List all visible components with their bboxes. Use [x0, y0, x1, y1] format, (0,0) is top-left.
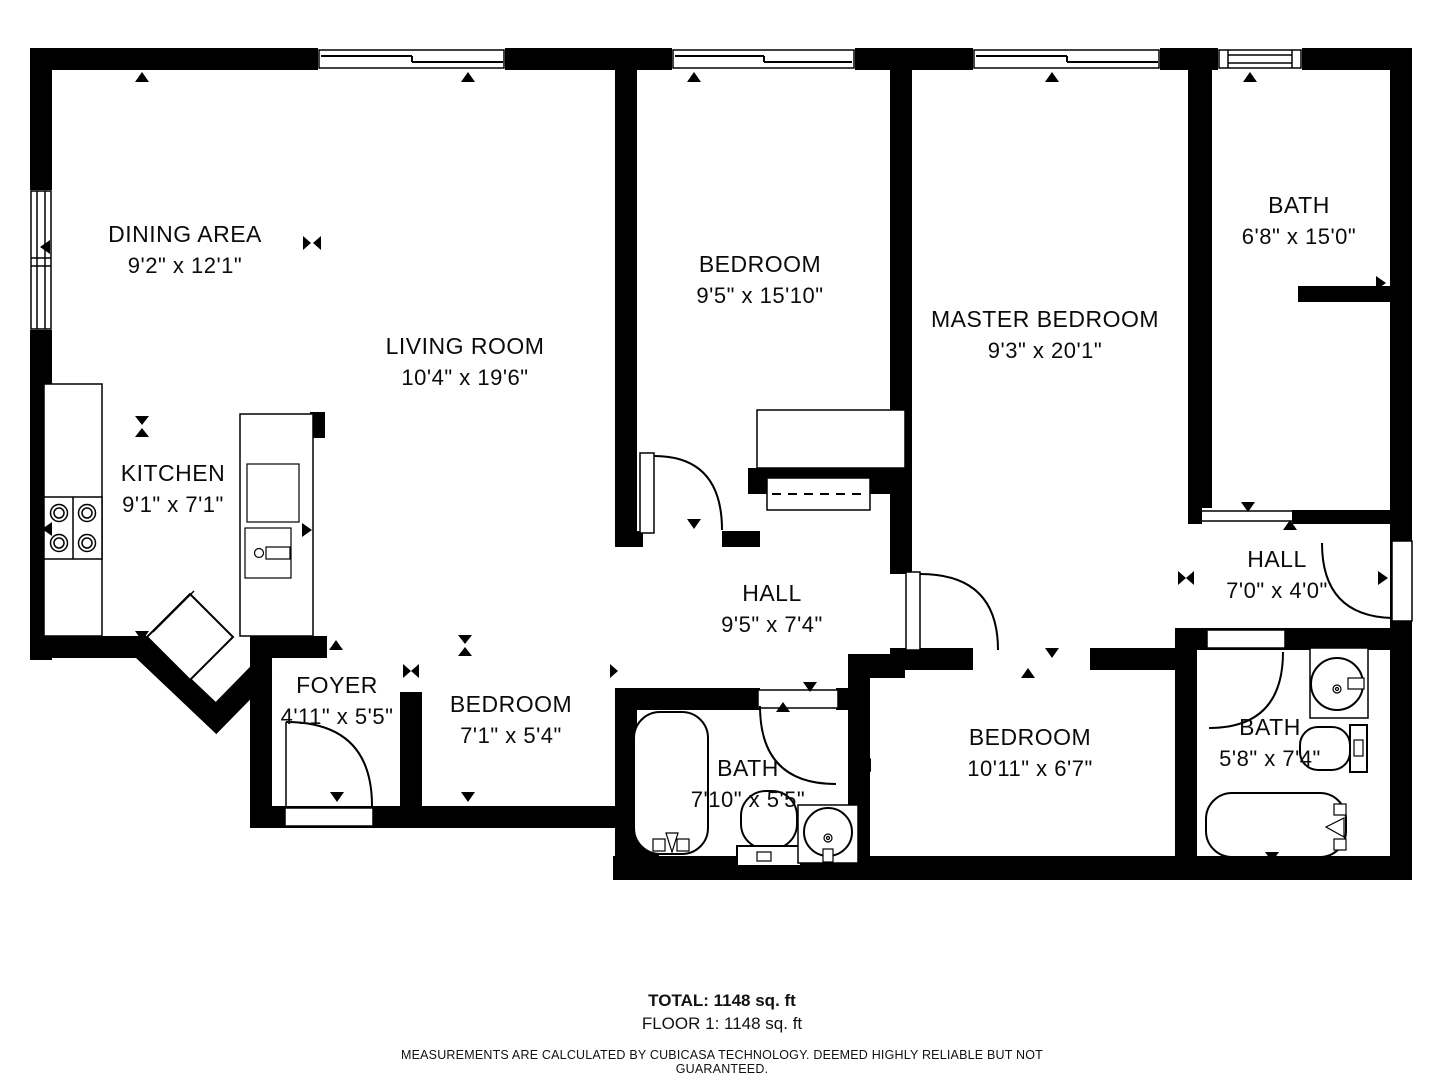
room-label-bedroom-small: BEDROOM 7'1" x 5'4"	[450, 689, 572, 751]
closet-sliding-door	[767, 478, 870, 510]
window-living	[318, 48, 505, 70]
room-name: BATH	[1242, 190, 1356, 221]
window-bedroom	[672, 48, 855, 70]
window-master	[973, 48, 1160, 70]
room-label-bedroom-top: BEDROOM 9'5" x 15'10"	[696, 249, 823, 311]
room-dimensions: 5'8" x 7'4"	[1219, 743, 1321, 774]
room-name: BEDROOM	[696, 249, 823, 280]
room-name: BEDROOM	[967, 722, 1093, 753]
room-name: LIVING ROOM	[386, 331, 545, 362]
room-name: KITCHEN	[121, 458, 225, 489]
stove-icon	[44, 497, 102, 559]
door-bedroom-top	[640, 453, 722, 533]
room-dimensions: 9'5" x 15'10"	[696, 280, 823, 311]
room-name: MASTER BEDROOM	[931, 304, 1159, 335]
total-area-text: TOTAL: 1148 sq. ft	[363, 989, 1081, 1012]
room-name: FOYER	[281, 670, 394, 701]
door-foyer	[285, 722, 373, 826]
door-master	[906, 572, 998, 650]
dishwasher-icon	[245, 528, 291, 578]
window-dining	[30, 190, 52, 330]
opening-bedroom-door	[643, 529, 722, 549]
room-label-bath-right: BATH 5'8" x 7'4"	[1219, 712, 1321, 774]
room-dimensions: 4'11" x 5'5"	[281, 701, 394, 732]
sink-icon	[1310, 648, 1368, 718]
window-bath	[1218, 48, 1302, 70]
room-label-master: MASTER BEDROOM 9'3" x 20'1"	[931, 304, 1159, 366]
room-name: HALL	[721, 578, 823, 609]
room-dimensions: 9'2" x 12'1"	[108, 250, 262, 281]
room-name: BATH	[691, 753, 805, 784]
closet-bedroom	[757, 410, 905, 468]
room-name: HALL	[1226, 544, 1328, 575]
door-hall-right	[1322, 541, 1412, 621]
room-label-living: LIVING ROOM 10'4" x 19'6"	[386, 331, 545, 393]
room-dimensions: 10'11" x 6'7"	[967, 753, 1093, 784]
room-dimensions: 9'3" x 20'1"	[931, 335, 1159, 366]
room-label-foyer: FOYER 4'11" x 5'5"	[281, 670, 394, 732]
room-name: DINING AREA	[108, 219, 262, 250]
room-label-hall-right: HALL 7'0" x 4'0"	[1226, 544, 1328, 606]
floor-area-text: FLOOR 1: 1148 sq. ft	[363, 1012, 1081, 1035]
room-dimensions: 6'8" x 15'0"	[1242, 221, 1356, 252]
room-dimensions: 9'5" x 7'4"	[721, 609, 823, 640]
room-name: BATH	[1219, 712, 1321, 743]
room-label-bath-top: BATH 6'8" x 15'0"	[1242, 190, 1356, 252]
room-label-bath-mid: BATH 7'10" x 5'5"	[691, 753, 805, 815]
room-label-dining: DINING AREA 9'2" x 12'1"	[108, 219, 262, 281]
disclaimer-text: MEASUREMENTS ARE CALCULATED BY CUBICASA …	[363, 1048, 1081, 1076]
room-name: BEDROOM	[450, 689, 572, 720]
room-dimensions: 9'1" x 7'1"	[121, 489, 225, 520]
bathtub-icon	[1206, 793, 1346, 857]
opening-bath-top	[1202, 508, 1292, 526]
sink-icon	[798, 805, 858, 863]
floor-plan-drawing	[0, 0, 1440, 1080]
room-label-bedroom-bottom: BEDROOM 10'11" x 6'7"	[967, 722, 1093, 784]
kitchen-sink-icon	[247, 464, 299, 522]
room-dimensions: 7'1" x 5'4"	[450, 720, 572, 751]
room-dimensions: 7'10" x 5'5"	[691, 784, 805, 815]
room-dimensions: 7'0" x 4'0"	[1226, 575, 1328, 606]
windows	[30, 48, 1302, 330]
opening-bedroom-bottom	[973, 646, 1090, 672]
closets	[757, 410, 905, 510]
room-label-hall-main: HALL 9'5" x 7'4"	[721, 578, 823, 640]
room-dimensions: 10'4" x 19'6"	[386, 362, 545, 393]
footer: TOTAL: 1148 sq. ft FLOOR 1: 1148 sq. ft …	[363, 989, 1081, 1076]
room-label-kitchen: KITCHEN 9'1" x 7'1"	[121, 458, 225, 520]
floor-plan-page: DINING AREA 9'2" x 12'1" LIVING ROOM 10'…	[0, 0, 1440, 1080]
